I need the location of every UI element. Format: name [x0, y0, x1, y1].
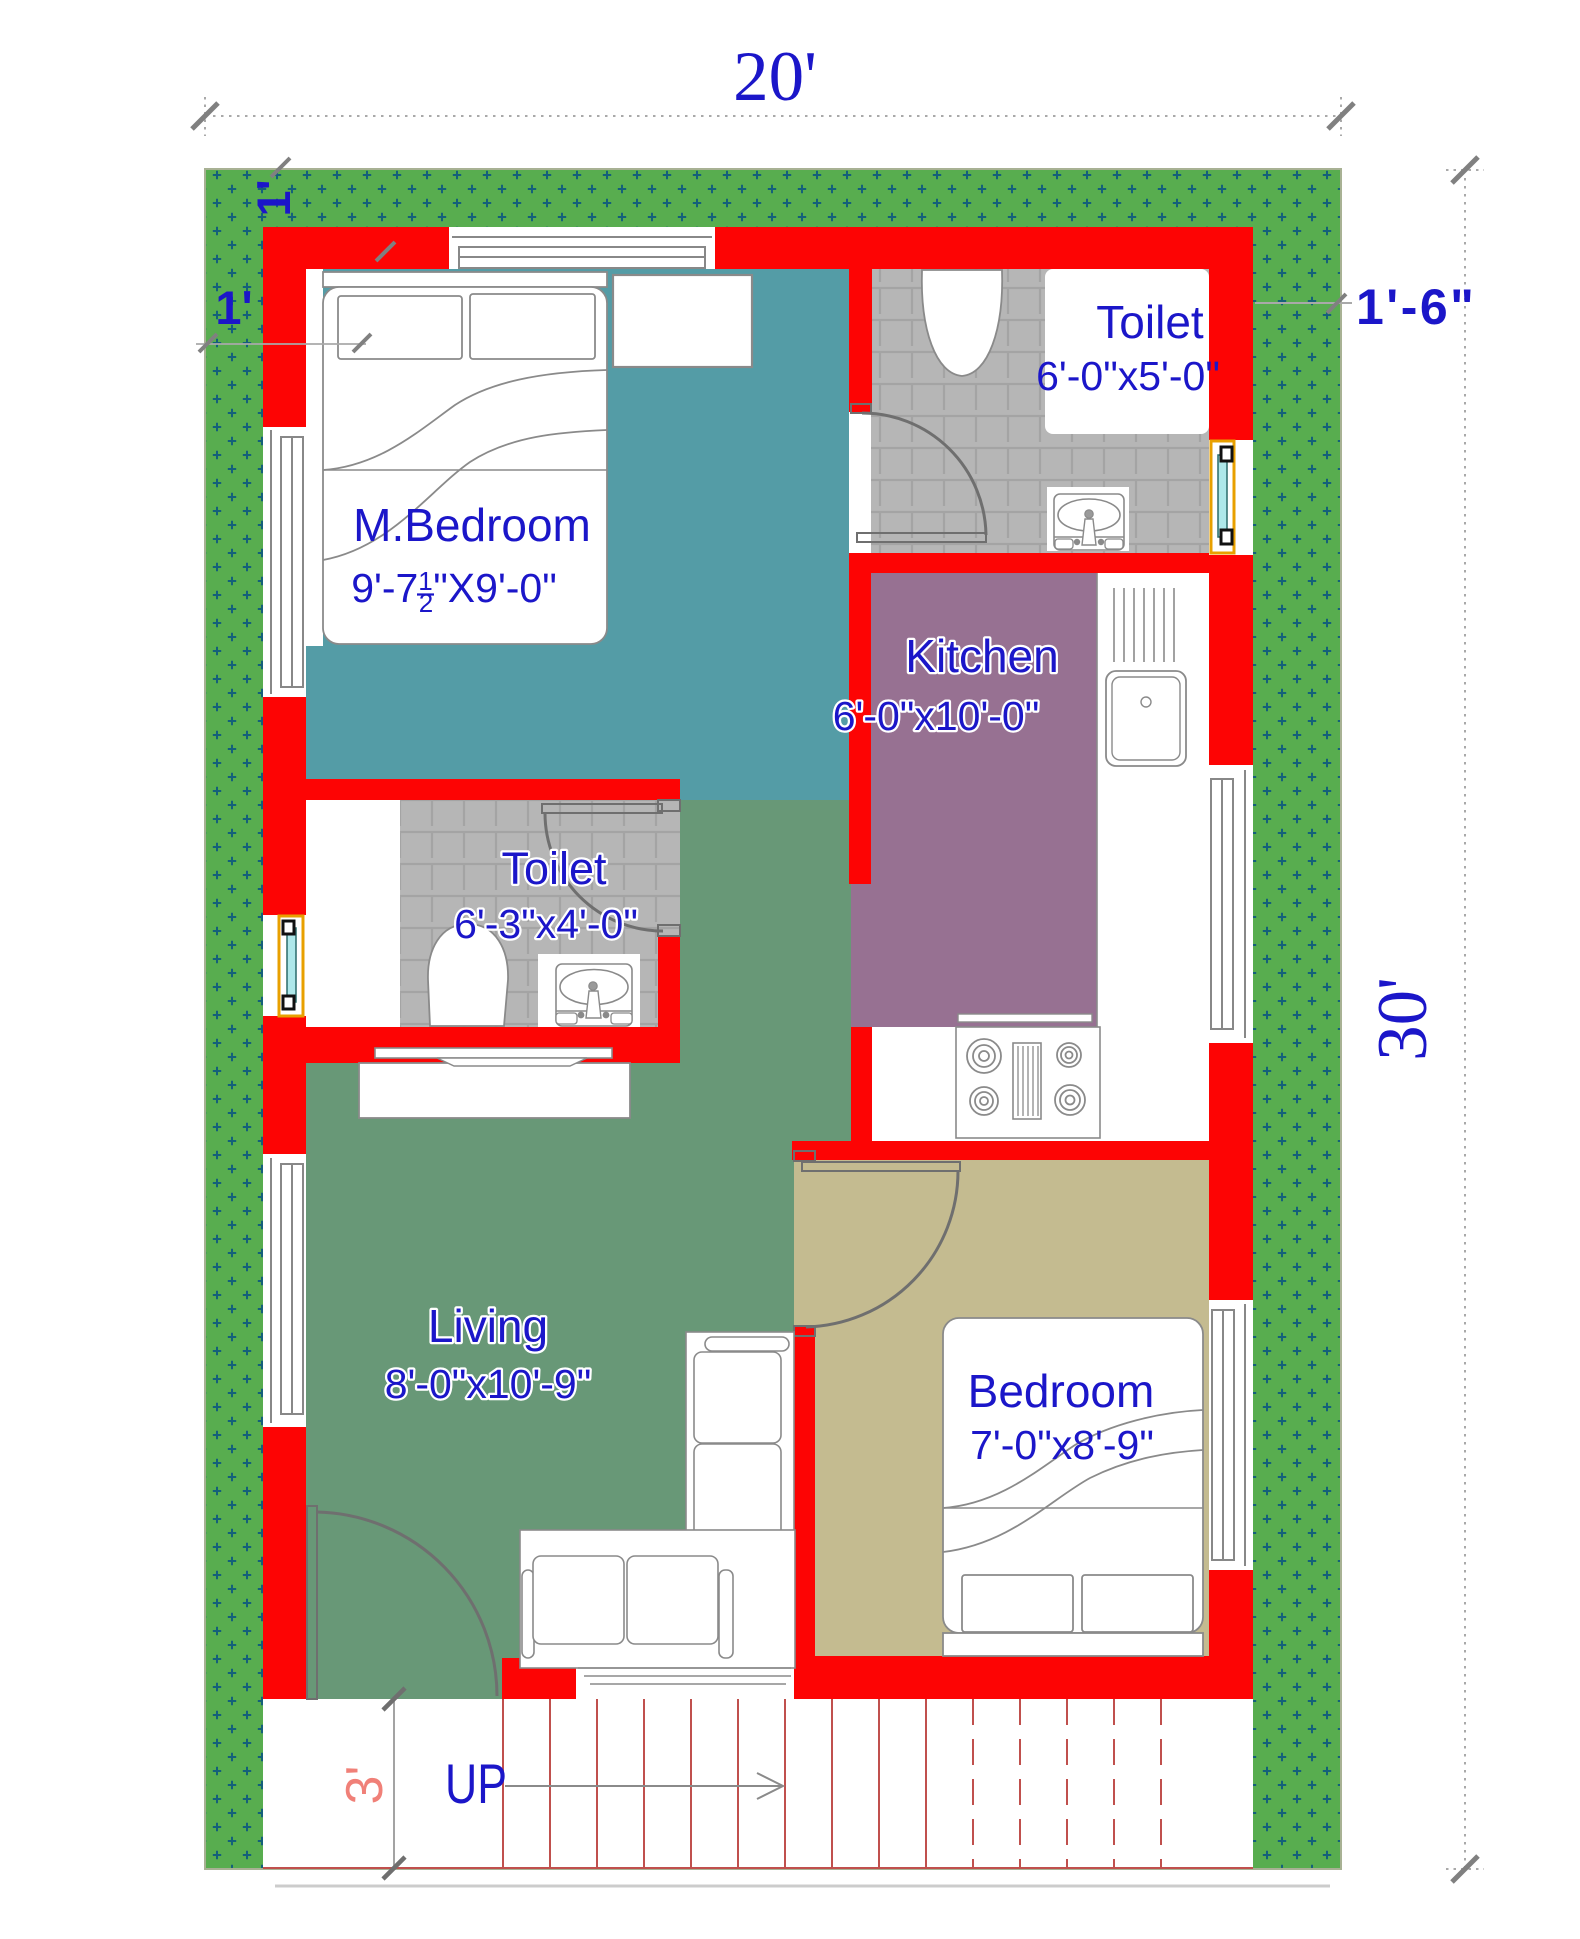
- svg-text:6'-0"x5'-0": 6'-0"x5'-0": [1036, 353, 1220, 399]
- svg-text:Bedroom: Bedroom: [968, 1365, 1155, 1417]
- svg-text:Toilet: Toilet: [1096, 296, 1204, 348]
- svg-text:6'-0"x10'-0": 6'-0"x10'-0": [833, 693, 1040, 739]
- svg-text:30': 30': [1364, 977, 1442, 1061]
- svg-text:1'-6": 1'-6": [1356, 279, 1476, 335]
- svg-text:Living: Living: [428, 1300, 548, 1352]
- svg-text:6'-3"x4'-0": 6'-3"x4'-0": [454, 901, 638, 947]
- svg-text:3': 3': [336, 1766, 394, 1805]
- svg-text:7'-0"x8'-9": 7'-0"x8'-9": [970, 1422, 1154, 1468]
- svg-text:1': 1': [215, 281, 252, 334]
- svg-text:8'-0"x10'-9": 8'-0"x10'-9": [385, 1361, 592, 1407]
- svg-text:Kitchen: Kitchen: [905, 630, 1058, 682]
- svg-text:M.Bedroom: M.Bedroom: [353, 499, 591, 551]
- svg-text:20': 20': [733, 38, 817, 116]
- svg-text:9'-712"X9'-0": 9'-712"X9'-0": [351, 565, 557, 618]
- svg-text:1': 1': [247, 179, 300, 216]
- svg-text:UP: UP: [445, 1752, 507, 1815]
- svg-text:Toilet: Toilet: [501, 843, 607, 894]
